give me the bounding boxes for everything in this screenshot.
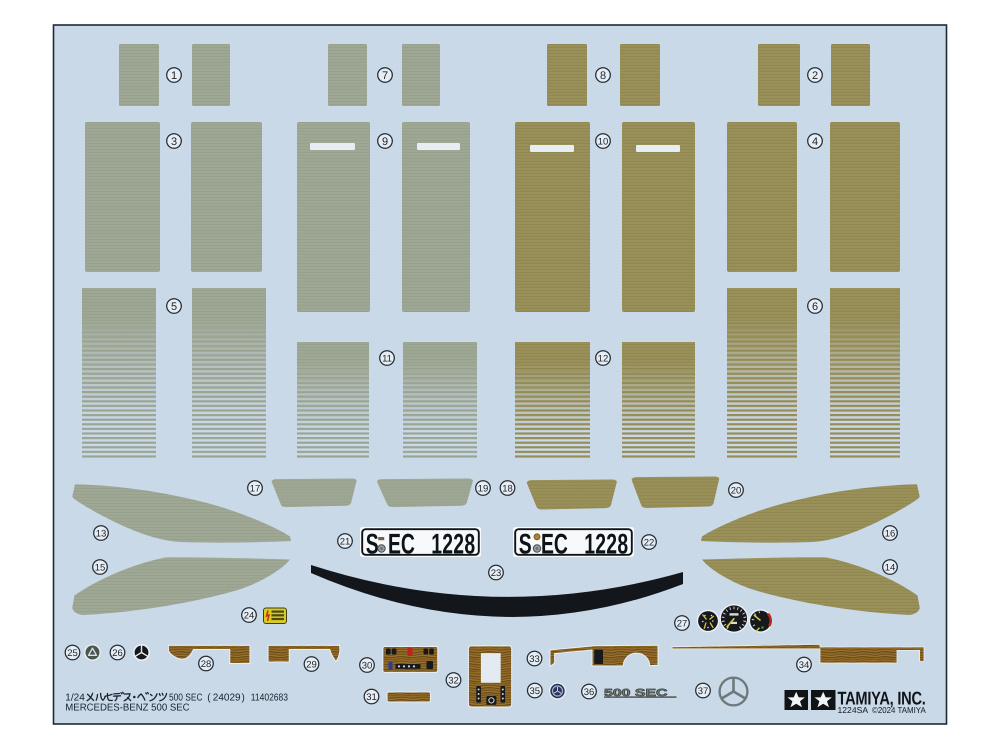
svg-text:5: 5 [171,301,177,313]
svg-text:26: 26 [112,648,123,659]
svg-text:24029: 24029 [213,693,241,704]
svg-text:32: 32 [448,675,459,686]
svg-text:1228: 1228 [431,528,475,560]
svg-text:17: 17 [250,483,261,494]
svg-text:7: 7 [382,70,388,82]
svg-text:9: 9 [382,136,388,148]
svg-text:8: 8 [600,70,606,82]
svg-text:13: 13 [96,528,107,539]
svg-text:): ) [242,693,245,704]
svg-text:1228: 1228 [584,528,628,560]
svg-text:6: 6 [812,301,818,313]
svg-text:14: 14 [885,562,896,573]
svg-text:15: 15 [95,562,106,573]
svg-text:3: 3 [171,136,177,148]
svg-text:19: 19 [478,483,489,494]
svg-text:22: 22 [644,537,655,548]
svg-text:33: 33 [529,654,540,665]
svg-text:EC: EC [388,528,415,560]
svg-text:18: 18 [502,483,513,494]
svg-text:37: 37 [698,686,709,697]
svg-text:©2024 TAMIYA: ©2024 TAMIYA [872,705,926,715]
svg-text:EC: EC [541,528,568,560]
svg-text:1: 1 [171,70,177,82]
svg-text:36: 36 [584,687,595,698]
svg-text:23: 23 [491,568,502,579]
svg-text:20: 20 [731,485,742,496]
svg-text:35: 35 [530,686,541,697]
svg-text:27: 27 [677,618,688,629]
svg-text:11402683: 11402683 [251,693,289,704]
svg-text:25: 25 [67,648,78,659]
svg-text:4: 4 [812,136,818,148]
svg-text:29: 29 [306,659,317,670]
svg-text:34: 34 [799,660,810,671]
svg-text:21: 21 [340,536,351,547]
svg-text:2: 2 [812,70,818,82]
svg-text:10: 10 [598,136,609,147]
svg-text:12: 12 [598,353,609,364]
svg-text:24: 24 [244,610,255,621]
svg-text:S: S [366,528,379,560]
svg-text:30: 30 [362,660,373,671]
svg-text:31: 31 [366,692,377,703]
svg-text:11: 11 [382,353,392,364]
svg-text:1224SA: 1224SA [838,705,869,715]
svg-text:S: S [519,528,532,560]
svg-text:MERCEDES-BENZ 500 SEC: MERCEDES-BENZ 500 SEC [65,703,189,714]
svg-text:16: 16 [885,528,896,539]
svg-text:28: 28 [201,659,212,670]
